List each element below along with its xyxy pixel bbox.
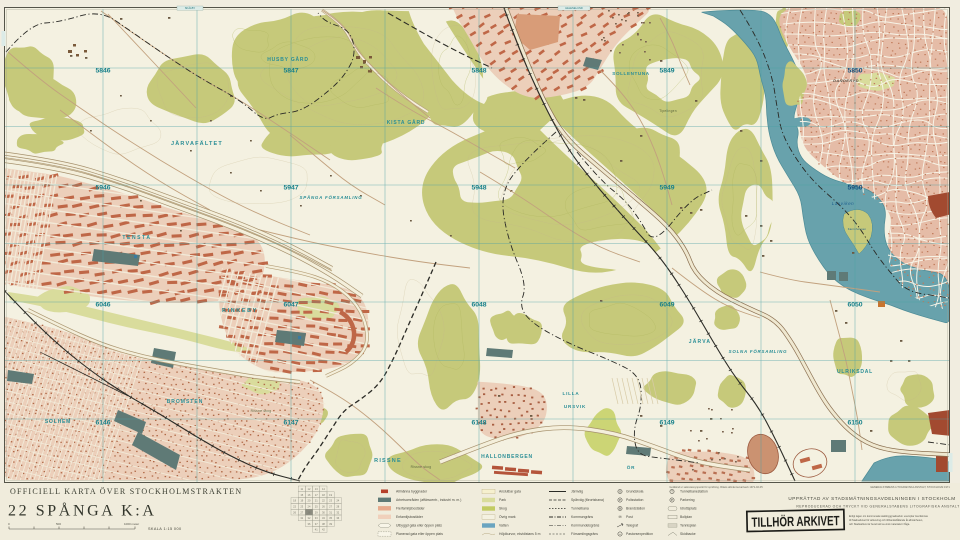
svg-text:SKALA 1:15 000: SKALA 1:15 000 [148,527,181,531]
svg-text:Brandstation: Brandstation [626,507,645,511]
svg-text:Läsviken: Läsviken [832,201,855,206]
svg-text:1000 meter: 1000 meter [124,522,139,526]
svg-text:6048: 6048 [471,302,486,309]
svg-text:6050: 6050 [847,302,862,309]
svg-text:Pastorsexpedition: Pastorsexpedition [626,532,653,536]
svg-text:JÄRVAFÄLTET: JÄRVAFÄLTET [171,140,223,147]
svg-text:Allmänna byggnader: Allmänna byggnader [396,490,428,494]
svg-text:Parkering: Parkering [680,498,695,502]
svg-text:5947: 5947 [283,185,298,192]
svg-text:Planerad gata eller öppen plat: Planerad gata eller öppen plats [396,532,443,536]
svg-text:Enligt lagen om kommunala stad: Enligt lagen om kommunala stadsbyggnadsa… [849,515,929,518]
svg-text:6046: 6046 [95,302,110,309]
svg-text:6049: 6049 [659,302,674,309]
svg-text:Arbetsområden (affärscentr., i: Arbetsområden (affärscentr., industri m.… [396,498,461,502]
svg-text:5848: 5848 [471,68,486,75]
svg-text:REPRODUCERAD OCH TRYCKT VID GE: REPRODUCERAD OCH TRYCKT VID GENERALSTABE… [796,505,959,509]
svg-text:KISTA GÅRD: KISTA GÅRD [387,119,426,126]
svg-text:6147: 6147 [283,420,298,427]
svg-text:✉: ✉ [619,515,622,519]
svg-text:Tipelingen: Tipelingen [659,109,677,113]
svg-text:URSVIK: URSVIK [564,404,586,409]
svg-text:UPPRÄTTAD AV STADSMÄTNINGSAVDE: UPPRÄTTAD AV STADSMÄTNINGSAVDELNINGEN I … [788,495,955,501]
svg-text:till Stadsarkivet för arkiveri: till Stadsarkivet för arkivering och til… [849,519,923,522]
svg-text:Höjdkurvor, ekvidistans 5 m: Höjdkurvor, ekvidistans 5 m [499,532,541,536]
svg-text:5850: 5850 [847,68,862,75]
svg-text:5846: 5846 [95,68,110,75]
svg-text:LILLA: LILLA [562,391,579,396]
svg-text:SOLNA FÖRSAMLING: SOLNA FÖRSAMLING [729,349,788,354]
svg-text:6148: 6148 [471,420,486,427]
svg-text:HUSBY GÅRD: HUSBY GÅRD [267,56,309,63]
svg-text:Utbyggd gata eller öppen plats: Utbyggd gata eller öppen plats [396,524,442,528]
svg-text:Tunnelbana: Tunnelbana [571,507,589,511]
svg-text:SPÅNGA FÖRSAMLING: SPÅNGA FÖRSAMLING [300,195,363,200]
svg-text:SKÄLBY: SKÄLBY [185,6,196,10]
svg-text:OFFICIELL KARTA ÖVER STOCKHOLM: OFFICIELL KARTA ÖVER STOCKHOLMSTRAKTEN [10,487,242,496]
svg-text:Enfamiljsbostäder: Enfamiljsbostäder [396,515,424,519]
svg-text:ULRIKSDAL: ULRIKSDAL [837,369,873,375]
svg-text:Övrig mark: Övrig mark [499,515,516,519]
svg-text:Bollplan: Bollplan [680,515,692,519]
svg-text:Flerfamiljsbostäder: Flerfamiljsbostäder [396,507,426,511]
svg-text:5847: 5847 [283,68,298,75]
svg-text:Skidbacke: Skidbacke [680,532,696,536]
svg-text:SOLHEM: SOLHEM [45,419,71,425]
svg-text:RISSNE: RISSNE [374,458,402,464]
svg-text:DANDERYD: DANDERYD [833,78,859,83]
svg-text:Park: Park [499,498,506,502]
svg-text:5949: 5949 [659,185,674,192]
svg-text:6149: 6149 [659,420,674,427]
svg-text:HELENELUND: HELENELUND [565,6,583,10]
svg-text:6047: 6047 [283,302,298,309]
svg-text:+: + [619,532,621,536]
svg-text:Idrottsplats: Idrottsplats [680,507,697,511]
svg-text:SOLLENTUNA: SOLLENTUNA [612,71,649,76]
svg-text:5946: 5946 [95,185,110,192]
svg-text:Kommungräns: Kommungräns [571,515,593,519]
svg-text:Spårväg (förortsbana): Spårväg (förortsbana) [571,498,604,502]
svg-text:Polisstation: Polisstation [626,498,643,502]
svg-text:Godkänd ur sekretessynpunkt fö: Godkänd ur sekretessynpunkt för spridnin… [669,485,763,489]
svg-text:Vatten: Vatten [499,524,509,528]
svg-text:500: 500 [56,522,61,526]
svg-text:Rissne skog: Rissne skog [411,465,432,469]
svg-text:5948: 5948 [471,185,486,192]
svg-text:Anslutbar gata: Anslutbar gata [499,490,521,494]
svg-text:Post: Post [626,515,633,519]
svg-text:B: B [619,507,621,511]
svg-text:Rissne skog: Rissne skog [251,409,272,413]
svg-text:JÄRVA: JÄRVA [689,338,712,345]
svg-text:ÖR: ÖR [627,464,636,470]
svg-text:HALLONBERGEN: HALLONBERGEN [481,454,533,460]
svg-text:Tennisplan: Tennisplan [680,524,696,528]
svg-text:6150: 6150 [847,420,862,427]
svg-text:P: P [671,498,673,502]
svg-text:T: T [671,490,673,494]
svg-text:TILLHÖR ARKIVET: TILLHÖR ARKIVET [751,513,840,530]
svg-text:GENERALSTABENS LITOGRAFISKA AN: GENERALSTABENS LITOGRAFISKA ANSTALT, STO… [870,485,950,489]
svg-text:Kommundelsgräns: Kommundelsgräns [571,524,600,528]
svg-text:och Stadsarkivet är berett att: och Stadsarkivet är berett att ta emot m… [849,523,910,526]
svg-text:RINKEBY: RINKEBY [222,308,258,314]
svg-text:6146: 6146 [95,420,110,427]
svg-text:Tunnelbanestation: Tunnelbanestation [680,490,708,494]
svg-text:5950: 5950 [847,185,862,192]
svg-text:Grundskola: Grundskola [626,490,643,494]
svg-text:22 SPÅNGA K:A: 22 SPÅNGA K:A [8,502,157,520]
svg-text:Församlingsgräns: Församlingsgräns [571,532,598,536]
svg-text:BROMSTEN: BROMSTEN [167,399,204,405]
svg-text:TENSTA: TENSTA [122,235,151,241]
svg-text:5849: 5849 [659,68,674,75]
svg-text:P: P [619,498,621,502]
svg-text:Järnväg: Järnväg [571,490,583,494]
svg-text:Kaninholmen: Kaninholmen [848,227,867,231]
svg-text:Telegraf: Telegraf [626,524,638,528]
svg-text:Skog: Skog [499,507,507,511]
